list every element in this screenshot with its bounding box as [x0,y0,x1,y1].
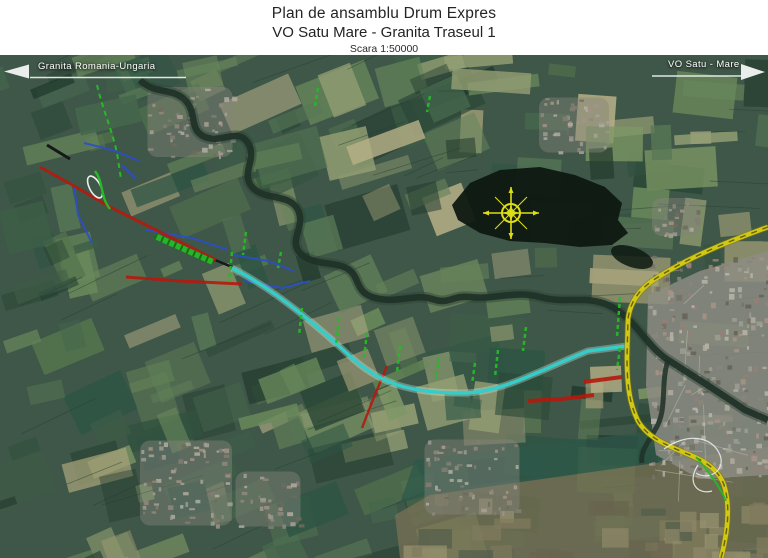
page-subtitle: VO Satu Mare - Granita Traseul 1 [0,24,768,41]
border-direction-label: Granita Romania-Ungaria [38,61,155,72]
page-title: Plan de ansamblu Drum Expres [0,0,768,23]
destination-direction-label: VO Satu - Mare [668,59,740,70]
scale-label: Scara 1:50000 [0,43,768,55]
plan-header: Plan de ansamblu Drum Expres VO Satu Mar… [0,0,768,55]
plan-page: Plan de ansamblu Drum Expres VO Satu Mar… [0,0,768,558]
map-canvas: Granita Romania-Ungaria VO Satu - Mare [0,55,768,558]
satellite-plan-svg [0,55,768,558]
